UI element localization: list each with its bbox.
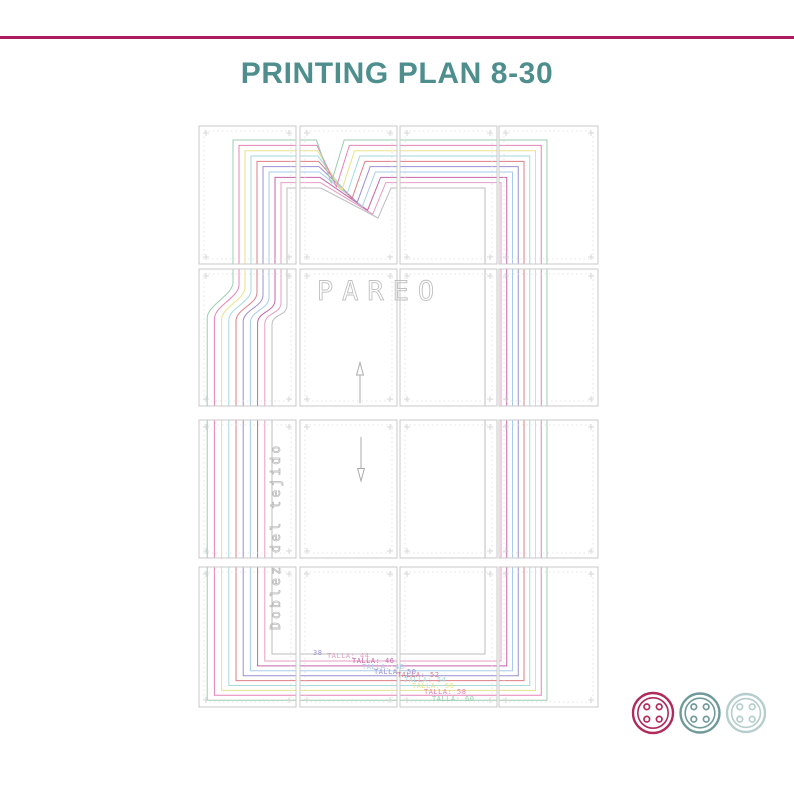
register-cross-mark — [304, 424, 310, 430]
size-outline-48 — [250, 172, 512, 671]
register-cross-mark — [304, 130, 310, 136]
page-tile-r3c2 — [300, 420, 397, 558]
register-cross-mark — [286, 548, 292, 554]
grain-arrow-down — [358, 437, 365, 481]
page-tile-r3c4 — [499, 420, 598, 558]
size-outline-46 — [258, 177, 507, 666]
page-tile-r2c4 — [499, 269, 598, 406]
size-label: 38 — [313, 649, 322, 657]
register-cross-mark — [404, 130, 410, 136]
register-cross-mark — [404, 424, 410, 430]
register-cross-mark — [203, 697, 209, 703]
register-cross-mark — [503, 697, 509, 703]
register-cross-mark — [503, 130, 509, 136]
size-outline-50 — [243, 167, 518, 676]
register-cross-mark — [387, 254, 393, 260]
register-cross-mark — [588, 130, 594, 136]
register-cross-mark — [588, 697, 594, 703]
page-tile-r1c3 — [400, 126, 497, 264]
fabric-fold-label: Doblez del tejido — [269, 443, 284, 630]
register-cross-mark — [203, 130, 209, 136]
register-cross-mark — [203, 571, 209, 577]
register-cross-mark — [503, 424, 509, 430]
piece-name-label: PAREO — [317, 276, 443, 307]
register-cross-mark — [487, 396, 493, 402]
button-pale-teal-icon — [727, 694, 765, 732]
page-tile-r3c3 — [400, 420, 497, 558]
register-cross-mark — [304, 396, 310, 402]
brand-buttons — [633, 693, 765, 733]
register-cross-mark — [503, 396, 509, 402]
register-cross-mark — [203, 396, 209, 402]
register-cross-mark — [487, 548, 493, 554]
register-cross-mark — [588, 273, 594, 279]
printing-plan-diagram: PAREODoblez del tejido38TALLA: 44TALLA: … — [0, 0, 794, 794]
size-outline-38 — [272, 188, 485, 654]
register-cross-mark — [487, 254, 493, 260]
register-cross-mark — [304, 571, 310, 577]
register-cross-mark — [404, 571, 410, 577]
register-cross-mark — [387, 396, 393, 402]
register-cross-mark — [387, 548, 393, 554]
register-cross-mark — [588, 571, 594, 577]
page-tile-r1c4 — [499, 126, 598, 264]
register-cross-mark — [203, 424, 209, 430]
button-teal-icon — [681, 694, 720, 733]
button-crimson-icon — [633, 693, 673, 733]
register-cross-mark — [404, 396, 410, 402]
register-cross-mark — [286, 396, 292, 402]
register-cross-mark — [588, 424, 594, 430]
register-cross-mark — [404, 697, 410, 703]
size-label: TALLA: 60 — [432, 695, 474, 703]
grain-arrow-up — [357, 363, 364, 404]
register-cross-mark — [304, 697, 310, 703]
